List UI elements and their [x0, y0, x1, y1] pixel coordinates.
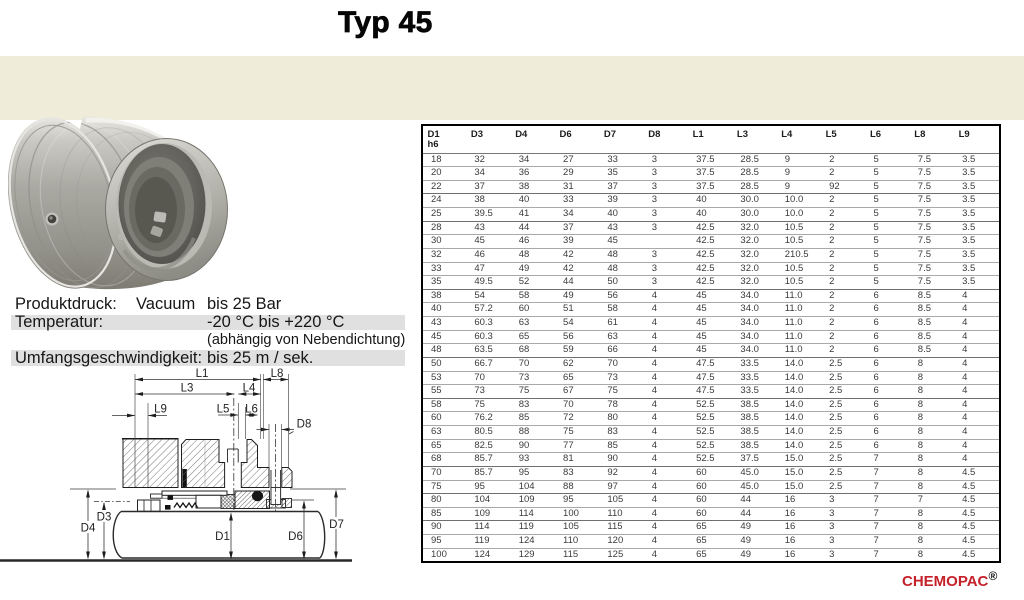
svg-text:D4: D4 [81, 523, 96, 535]
svg-text:L6: L6 [245, 404, 258, 416]
svg-text:L1: L1 [196, 368, 209, 380]
svg-text:L3: L3 [181, 383, 194, 395]
svg-text:L8: L8 [271, 368, 284, 380]
svg-text:D8: D8 [297, 419, 312, 431]
svg-text:L9: L9 [154, 404, 167, 416]
svg-text:D6: D6 [288, 531, 303, 543]
svg-text:D1: D1 [215, 531, 230, 543]
svg-text:D7: D7 [329, 519, 344, 531]
svg-text:D3: D3 [97, 512, 112, 524]
svg-text:L4: L4 [243, 383, 256, 395]
svg-text:L5: L5 [217, 404, 230, 416]
